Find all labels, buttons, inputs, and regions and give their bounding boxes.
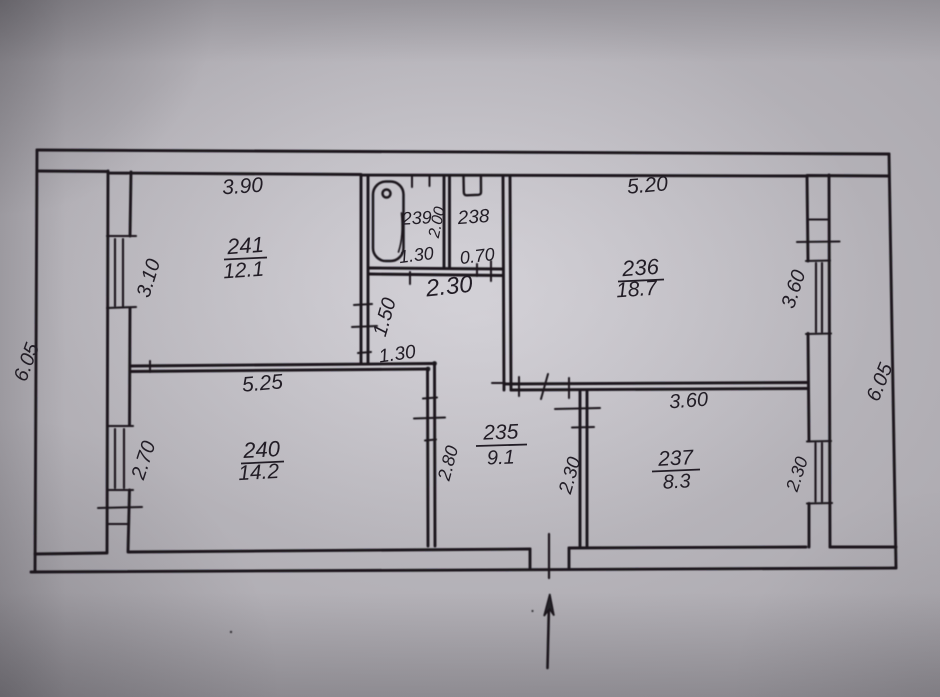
svg-text:2.30: 2.30 <box>782 454 812 494</box>
svg-text:6.05: 6.05 <box>10 339 44 384</box>
svg-text:3.60: 3.60 <box>668 389 708 414</box>
svg-text:2.70: 2.70 <box>127 438 160 483</box>
svg-text:2.30: 2.30 <box>424 271 475 303</box>
svg-text:237: 237 <box>657 446 696 471</box>
svg-text:12.1: 12.1 <box>222 258 264 284</box>
svg-text:5.25: 5.25 <box>241 370 284 397</box>
svg-text:9.1: 9.1 <box>487 447 516 470</box>
svg-text:14.2: 14.2 <box>238 460 280 485</box>
svg-text:3.90: 3.90 <box>221 174 264 200</box>
svg-text:1.30: 1.30 <box>398 243 435 267</box>
svg-text:1.50: 1.50 <box>369 296 401 339</box>
svg-text:240: 240 <box>242 436 282 463</box>
svg-text:238: 238 <box>456 206 491 229</box>
svg-text:3.60: 3.60 <box>777 267 810 311</box>
svg-text:18.7: 18.7 <box>615 277 659 303</box>
svg-text:2.80: 2.80 <box>434 443 463 483</box>
svg-text:8.3: 8.3 <box>662 470 691 493</box>
svg-text:3.10: 3.10 <box>133 256 165 300</box>
svg-text:241: 241 <box>225 232 264 260</box>
svg-text:0.70: 0.70 <box>459 244 496 268</box>
svg-text:235: 235 <box>482 420 519 444</box>
svg-text:5.20: 5.20 <box>626 172 669 199</box>
